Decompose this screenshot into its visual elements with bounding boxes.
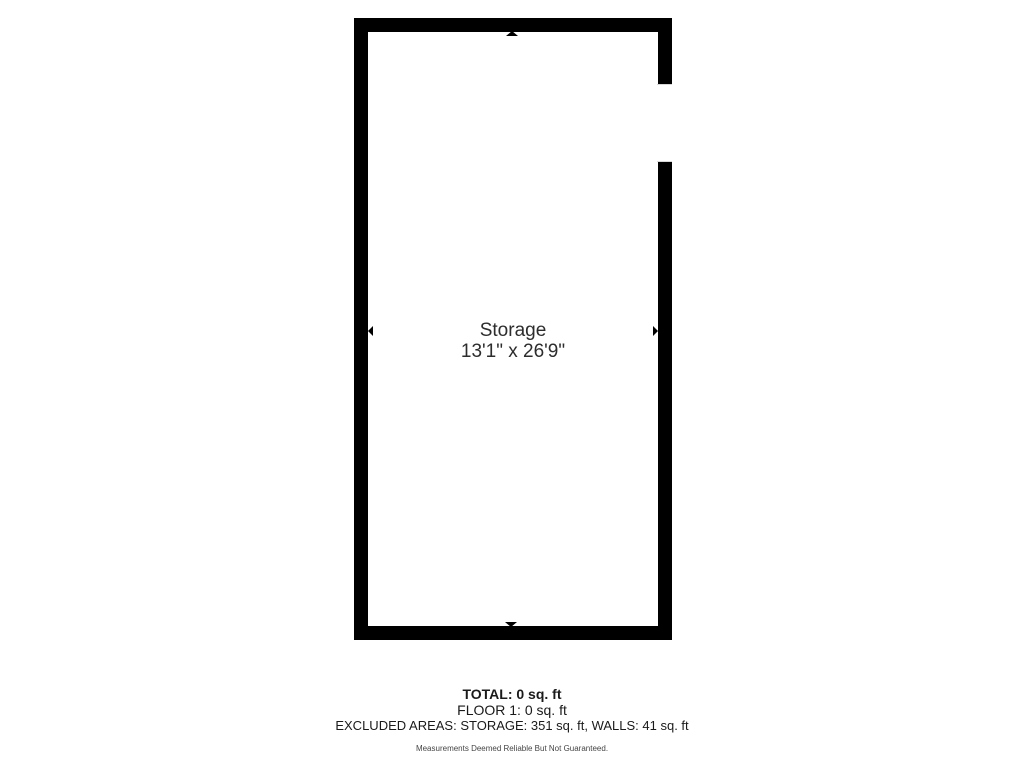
dimension-arrow-up-icon — [506, 31, 518, 36]
floorplan-canvas: Storage 13'1" x 26'9" — [354, 18, 672, 640]
excluded-areas-text: EXCLUDED AREAS: STORAGE: 351 sq. ft, WAL… — [0, 718, 1024, 734]
disclaimer-text: Measurements Deemed Reliable But Not Gua… — [0, 744, 1024, 753]
dimension-arrow-down-icon — [505, 622, 517, 627]
dimension-arrow-right-icon — [653, 326, 658, 336]
window-opening — [657, 84, 672, 162]
dimension-arrow-left-icon — [368, 326, 373, 336]
room-name: Storage — [368, 320, 658, 341]
floorplan-page: Storage 13'1" x 26'9" TOTAL: 0 sq. ft FL… — [0, 0, 1024, 768]
floor1-area-text: FLOOR 1: 0 sq. ft — [0, 703, 1024, 719]
room-label: Storage 13'1" x 26'9" — [368, 320, 658, 362]
area-summary: TOTAL: 0 sq. ft FLOOR 1: 0 sq. ft EXCLUD… — [0, 687, 1024, 753]
total-area-text: TOTAL: 0 sq. ft — [0, 687, 1024, 703]
room-storage: Storage 13'1" x 26'9" — [368, 32, 658, 626]
room-dimensions: 13'1" x 26'9" — [368, 341, 658, 362]
